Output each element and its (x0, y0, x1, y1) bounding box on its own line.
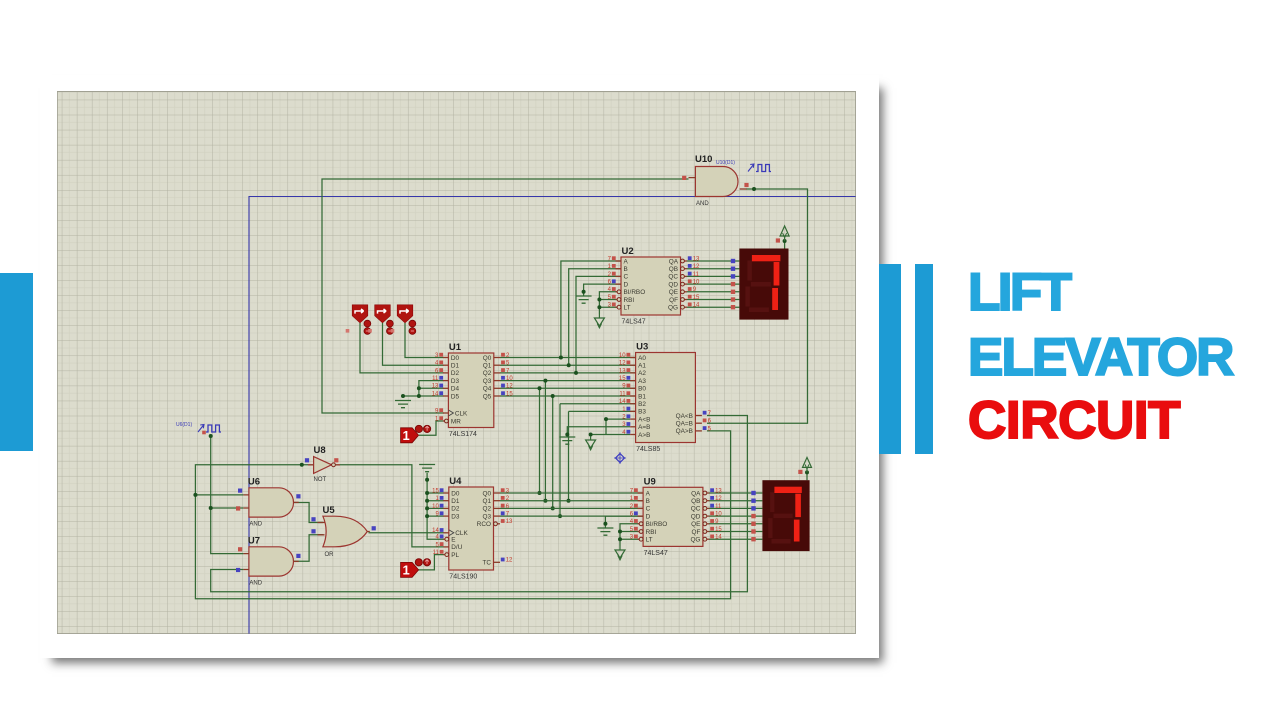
svg-text:11: 11 (693, 272, 700, 278)
svg-text:A: A (624, 258, 629, 265)
svg-text:QD: QD (691, 513, 701, 520)
svg-text:Q5: Q5 (483, 393, 492, 400)
svg-text:QB: QB (691, 498, 700, 505)
svg-text:D1: D1 (451, 498, 460, 505)
svg-text:12: 12 (693, 264, 700, 270)
svg-text:14: 14 (693, 303, 700, 309)
svg-text:AND: AND (249, 522, 262, 528)
svg-text:U6: U6 (248, 477, 260, 488)
svg-text:U4: U4 (449, 476, 462, 487)
svg-text:D5: D5 (451, 393, 460, 400)
svg-text:QA<B: QA<B (676, 413, 693, 420)
svg-text:Q2: Q2 (483, 370, 492, 377)
svg-text:10: 10 (432, 504, 439, 510)
svg-text:C: C (624, 274, 629, 281)
svg-text:D3: D3 (451, 378, 460, 385)
svg-text:BI/RBO: BI/RBO (624, 289, 646, 296)
svg-text:D1: D1 (451, 363, 460, 370)
svg-text:Q3: Q3 (482, 513, 491, 520)
svg-text:BI/RBO: BI/RBO (646, 521, 668, 528)
svg-text:LT: LT (646, 537, 653, 544)
svg-text:15: 15 (693, 295, 700, 301)
svg-text:A0: A0 (638, 355, 646, 362)
svg-text:U10(D1): U10(D1) (716, 160, 735, 166)
svg-text:AND: AND (249, 581, 262, 587)
svg-text:Q0: Q0 (483, 355, 492, 362)
svg-text:U1: U1 (449, 342, 462, 353)
svg-text:D2: D2 (451, 370, 460, 377)
svg-text:B: B (624, 266, 628, 273)
svg-text:RCO: RCO (477, 521, 491, 528)
svg-text:13: 13 (693, 256, 700, 262)
svg-text:12: 12 (715, 496, 722, 502)
svg-text:AND: AND (696, 201, 709, 207)
svg-text:QC: QC (668, 274, 678, 281)
svg-text:QA: QA (691, 490, 701, 497)
svg-text:13: 13 (715, 488, 722, 494)
svg-text:A3: A3 (638, 378, 646, 385)
svg-text:D3: D3 (451, 513, 460, 520)
svg-text:D: D (646, 513, 651, 520)
svg-text:RBI: RBI (646, 529, 657, 536)
svg-text:Q4: Q4 (483, 386, 492, 393)
svg-text:13: 13 (619, 368, 626, 374)
svg-text:15: 15 (506, 391, 513, 397)
svg-text:QA>B: QA>B (676, 428, 693, 435)
svg-text:QE: QE (691, 521, 700, 528)
svg-text:B3: B3 (638, 409, 646, 416)
svg-text:QD: QD (668, 281, 678, 288)
svg-text:CLK: CLK (455, 410, 468, 417)
svg-text:A>B: A>B (638, 432, 650, 439)
svg-text:D0: D0 (451, 355, 460, 362)
svg-text:QC: QC (691, 506, 701, 513)
svg-text:B: B (646, 498, 650, 505)
svg-text:U2: U2 (622, 246, 634, 257)
svg-text:QG: QG (690, 537, 700, 544)
svg-text:11: 11 (715, 504, 722, 510)
svg-text:12: 12 (506, 558, 513, 564)
svg-text:Q2: Q2 (482, 506, 491, 513)
svg-text:QF: QF (692, 529, 701, 536)
svg-text:RBI: RBI (624, 297, 635, 304)
svg-text:14: 14 (432, 528, 439, 534)
svg-text:U9: U9 (644, 476, 656, 487)
svg-text:U5: U5 (323, 505, 336, 516)
svg-text:TC: TC (482, 560, 491, 567)
svg-text:11: 11 (433, 550, 440, 556)
svg-text:14: 14 (715, 535, 722, 541)
svg-text:10: 10 (619, 353, 626, 359)
svg-text:15: 15 (619, 376, 626, 382)
svg-text:QF: QF (669, 297, 678, 304)
svg-text:QE: QE (669, 289, 678, 296)
svg-text:74LS47: 74LS47 (644, 550, 668, 557)
svg-text:12: 12 (506, 384, 513, 390)
svg-text:1: 1 (402, 562, 409, 577)
svg-text:15: 15 (715, 527, 722, 533)
svg-text:13: 13 (432, 384, 439, 390)
svg-text:12: 12 (619, 361, 626, 367)
svg-text:10: 10 (506, 376, 513, 382)
svg-text:Q3: Q3 (483, 378, 492, 385)
svg-text:A=B: A=B (638, 424, 650, 431)
svg-text:Q0: Q0 (482, 490, 491, 497)
svg-text:QB: QB (669, 266, 678, 273)
svg-text:D0: D0 (451, 490, 460, 497)
svg-text:D/U: D/U (451, 544, 462, 551)
svg-text:U3: U3 (636, 342, 648, 353)
svg-text:13: 13 (506, 519, 513, 525)
svg-text:14: 14 (619, 399, 626, 405)
svg-text:E: E (451, 537, 455, 544)
svg-text:11: 11 (619, 391, 626, 397)
svg-text:15: 15 (432, 488, 439, 494)
svg-text:NOT: NOT (314, 477, 327, 483)
svg-text:D2: D2 (451, 506, 460, 513)
svg-text:CLK: CLK (455, 530, 468, 537)
svg-text:B1: B1 (638, 393, 646, 400)
svg-text:A<B: A<B (638, 416, 650, 423)
svg-text:A1: A1 (638, 363, 646, 370)
svg-text:10: 10 (693, 280, 700, 286)
svg-text:U7: U7 (248, 536, 260, 547)
svg-text:B2: B2 (638, 401, 646, 408)
svg-text:QG: QG (668, 305, 678, 312)
svg-text:74LS174: 74LS174 (449, 431, 477, 438)
svg-text:C: C (646, 506, 651, 513)
svg-text:U10: U10 (695, 154, 712, 165)
svg-text:Q1: Q1 (483, 363, 492, 370)
svg-text:MR: MR (451, 418, 461, 425)
svg-text:14: 14 (432, 391, 439, 397)
svg-text:74LS47: 74LS47 (622, 319, 646, 326)
svg-text:A: A (646, 490, 651, 497)
svg-text:LT: LT (624, 305, 631, 312)
svg-text:B0: B0 (638, 386, 646, 393)
svg-text:10: 10 (715, 512, 722, 518)
svg-text:1: 1 (402, 428, 409, 443)
svg-text:PL: PL (451, 552, 459, 559)
svg-text:11: 11 (432, 376, 439, 382)
svg-text:U8: U8 (314, 445, 326, 456)
svg-text:D: D (624, 281, 629, 288)
svg-text:74LS190: 74LS190 (449, 574, 477, 581)
svg-text:D4: D4 (451, 386, 460, 393)
svg-text:QA=B: QA=B (676, 421, 693, 428)
svg-text:U6(D1): U6(D1) (176, 422, 192, 428)
svg-text:A2: A2 (638, 370, 646, 377)
svg-text:OR: OR (325, 552, 335, 558)
svg-text:Q1: Q1 (482, 498, 491, 505)
svg-text:74LS85: 74LS85 (636, 446, 660, 453)
svg-text:QA: QA (669, 258, 679, 265)
